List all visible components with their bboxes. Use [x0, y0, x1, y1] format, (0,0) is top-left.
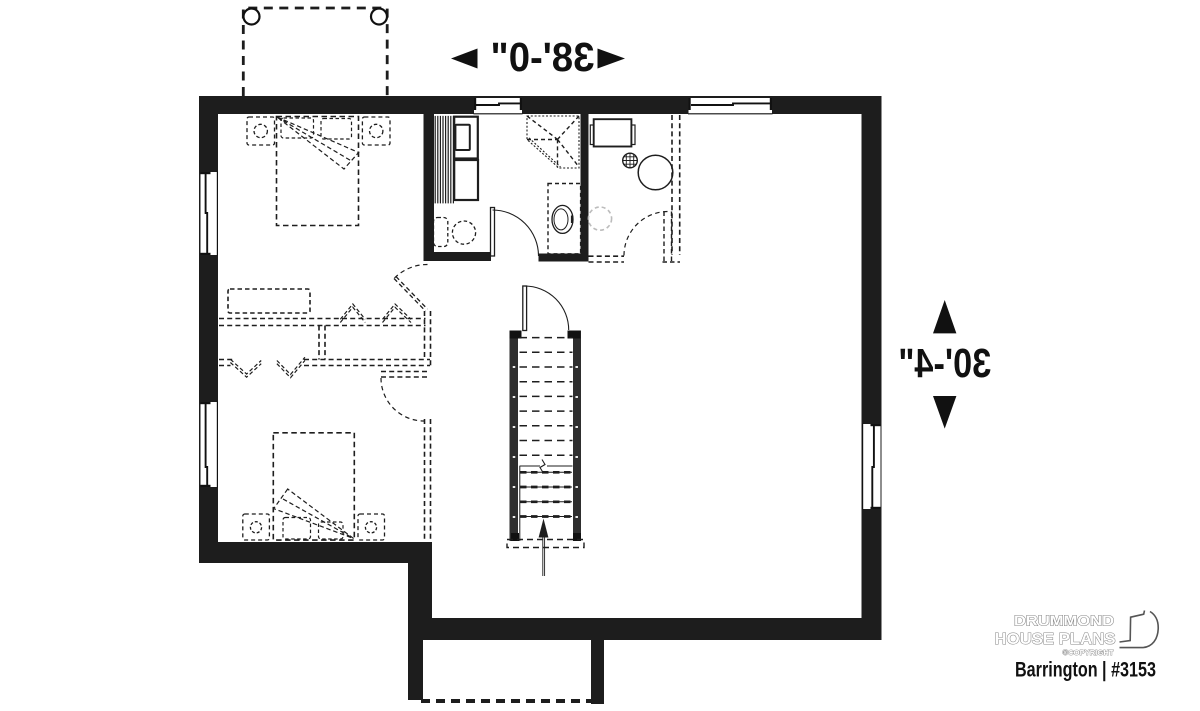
svg-text:DRUMMOND: DRUMMOND [1014, 614, 1114, 630]
svg-text:Barrington | #3153: Barrington | #3153 [1015, 659, 1156, 682]
svg-text:30'-4": 30'-4" [898, 340, 991, 386]
svg-text:38'-0": 38'-0" [491, 34, 595, 80]
svg-text:©COPYRIGHT: ©COPYRIGHT [1063, 648, 1114, 657]
svg-text:HOUSE PLANS: HOUSE PLANS [995, 631, 1116, 648]
